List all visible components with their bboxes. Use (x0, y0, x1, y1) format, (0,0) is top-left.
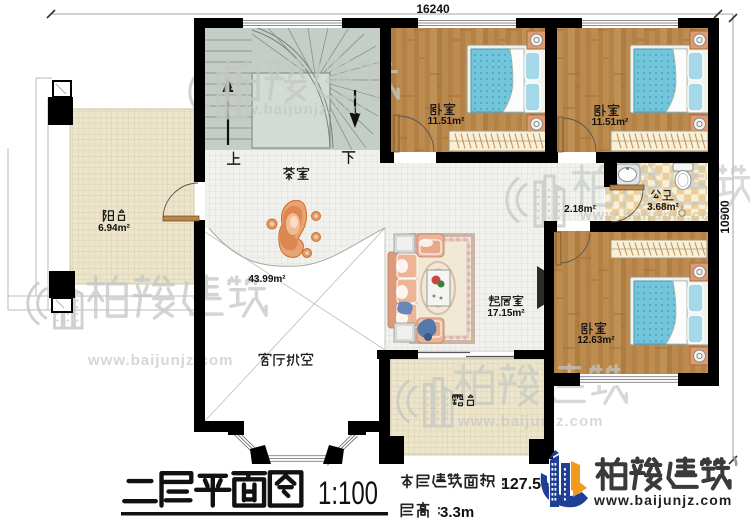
svg-text:2.18m²: 2.18m² (564, 204, 596, 215)
svg-text:12.63m²: 12.63m² (577, 335, 615, 346)
svg-text:www.baijunjz.com: www.baijunjz.com (87, 352, 233, 369)
svg-text:6.94m²: 6.94m² (98, 223, 130, 234)
svg-text:43.99m²: 43.99m² (248, 274, 286, 285)
svg-text:3.68m²: 3.68m² (647, 202, 679, 213)
svg-text:11.51m²: 11.51m² (428, 116, 465, 127)
svg-text:16240: 16240 (416, 2, 450, 16)
svg-text:3.3m: 3.3m (440, 504, 474, 521)
svg-text:1:100: 1:100 (318, 475, 378, 511)
svg-text:www.baijunjz.com: www.baijunjz.com (220, 101, 366, 118)
svg-text:11.51m²: 11.51m² (592, 117, 629, 128)
svg-text:17.15m²: 17.15m² (487, 308, 525, 319)
svg-text:www.baijunjz.com: www.baijunjz.com (593, 492, 732, 508)
svg-text:www.baijunjz.com: www.baijunjz.com (457, 413, 603, 430)
